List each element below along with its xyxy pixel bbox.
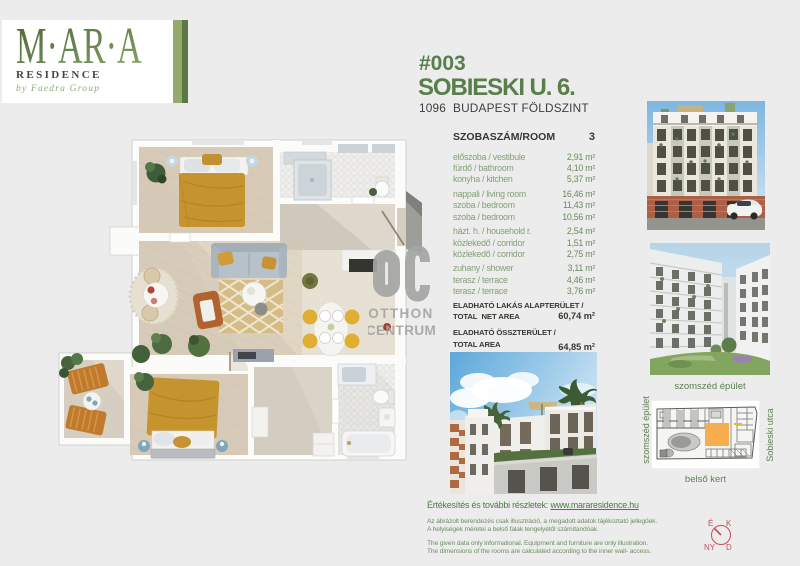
svg-text:É: É [708,519,713,528]
svg-text:D: D [726,543,732,552]
svg-text:K: K [726,519,732,528]
svg-text:OTTHON: OTTHON [368,306,433,321]
svg-text:CENTRUM: CENTRUM [368,323,436,338]
svg-text:NY: NY [704,543,716,552]
